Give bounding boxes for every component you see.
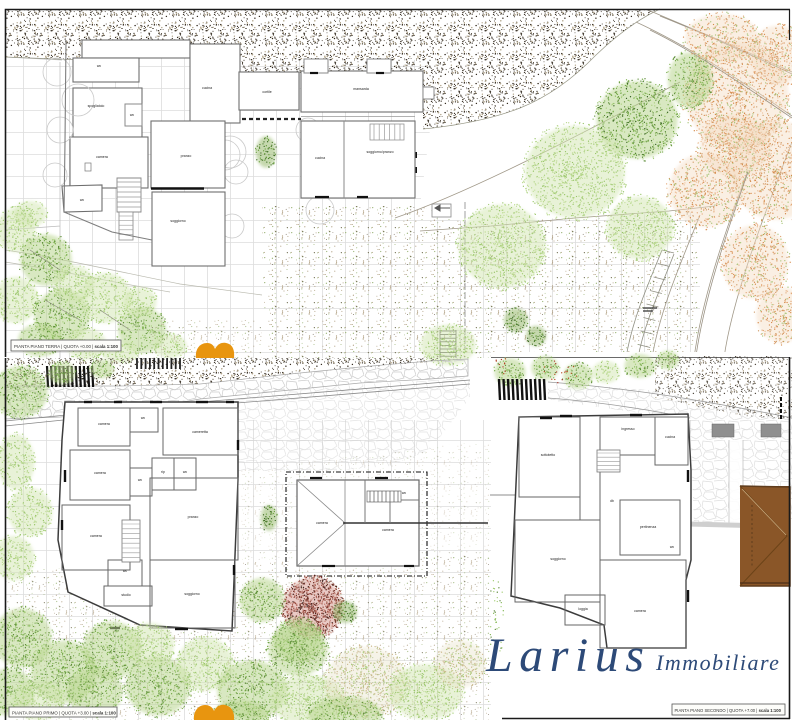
- svg-text:wc: wc: [670, 545, 675, 549]
- svg-text:camera: camera: [382, 528, 394, 532]
- svg-text:db: db: [610, 499, 614, 503]
- svg-text:soggiorno: soggiorno: [170, 219, 185, 223]
- svg-text:PIANTA PIANO PRIMO | QUOTA +3.: PIANTA PIANO PRIMO | QUOTA +3.00 | scala…: [12, 711, 116, 716]
- svg-text:camera: camera: [634, 609, 646, 613]
- svg-text:wc: wc: [97, 64, 102, 68]
- svg-text:loggia: loggia: [578, 607, 587, 611]
- svg-text:camera: camera: [316, 521, 328, 525]
- svg-text:pranzo: pranzo: [181, 154, 192, 158]
- svg-text:sottotetto: sottotetto: [541, 453, 555, 457]
- svg-text:cortile: cortile: [262, 90, 271, 94]
- svg-text:wc: wc: [183, 470, 188, 474]
- svg-text:mansarda: mansarda: [353, 87, 369, 91]
- svg-text:Immobiliare: Immobiliare: [655, 650, 780, 675]
- svg-text:wc: wc: [402, 491, 407, 495]
- svg-text:cucina: cucina: [665, 435, 675, 439]
- svg-text:wc: wc: [80, 198, 85, 202]
- svg-text:wc: wc: [123, 569, 128, 573]
- svg-text:soggiorno/pranzo: soggiorno/pranzo: [366, 150, 393, 154]
- svg-text:wc: wc: [141, 416, 146, 420]
- svg-text:wc: wc: [138, 478, 143, 482]
- svg-text:camera: camera: [90, 534, 102, 538]
- svg-text:pertinenza: pertinenza: [640, 525, 656, 529]
- svg-text:camera: camera: [96, 155, 108, 159]
- svg-text:ingresso: ingresso: [621, 427, 634, 431]
- svg-text:pranzo: pranzo: [188, 515, 199, 519]
- svg-text:PIANTA PIANO SECONDO | QUOTA +: PIANTA PIANO SECONDO | QUOTA +7.00 | sca…: [675, 708, 782, 713]
- svg-text:cameretta: cameretta: [192, 430, 208, 434]
- svg-text:studio: studio: [121, 593, 130, 597]
- svg-text:soggiorno: soggiorno: [550, 557, 565, 561]
- svg-text:cucina: cucina: [202, 86, 212, 90]
- svg-text:camera: camera: [94, 471, 106, 475]
- svg-text:cucina: cucina: [315, 156, 325, 160]
- svg-text:wc: wc: [130, 113, 135, 117]
- svg-text:soggiorno: soggiorno: [184, 592, 199, 596]
- svg-text:PIANTA PIANO TERRA | QUOTA +0.: PIANTA PIANO TERRA | QUOTA +0.00 | scala…: [14, 344, 118, 349]
- svg-text:camera: camera: [98, 422, 110, 426]
- svg-text:spogliatoio: spogliatoio: [88, 104, 105, 108]
- svg-text:Larius: Larius: [485, 629, 650, 682]
- svg-text:rip: rip: [161, 470, 165, 474]
